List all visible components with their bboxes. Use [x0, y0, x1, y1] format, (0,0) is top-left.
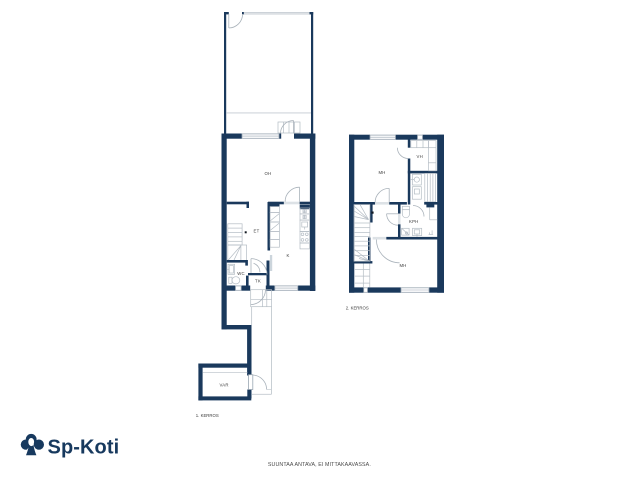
svg-text:ET: ET [254, 229, 260, 234]
svg-text:WC: WC [237, 271, 245, 276]
svg-text:2. KERROS: 2. KERROS [346, 306, 369, 311]
svg-text:VH: VH [417, 154, 423, 159]
svg-text:SUUNTAA ANTAVA, EI MITTAKAAVAS: SUUNTAA ANTAVA, EI MITTAKAAVASSA. [268, 462, 371, 468]
svg-text:MH: MH [400, 263, 407, 268]
svg-text:MH: MH [379, 170, 386, 175]
svg-text:Sp-Koti: Sp-Koti [48, 436, 120, 458]
svg-text:KPH: KPH [409, 219, 418, 224]
svg-text:VAR: VAR [220, 383, 229, 388]
svg-text:1. KERROS: 1. KERROS [196, 413, 219, 418]
svg-text:TK: TK [255, 278, 261, 283]
svg-text:OH: OH [265, 171, 272, 176]
svg-text:K: K [287, 253, 290, 258]
